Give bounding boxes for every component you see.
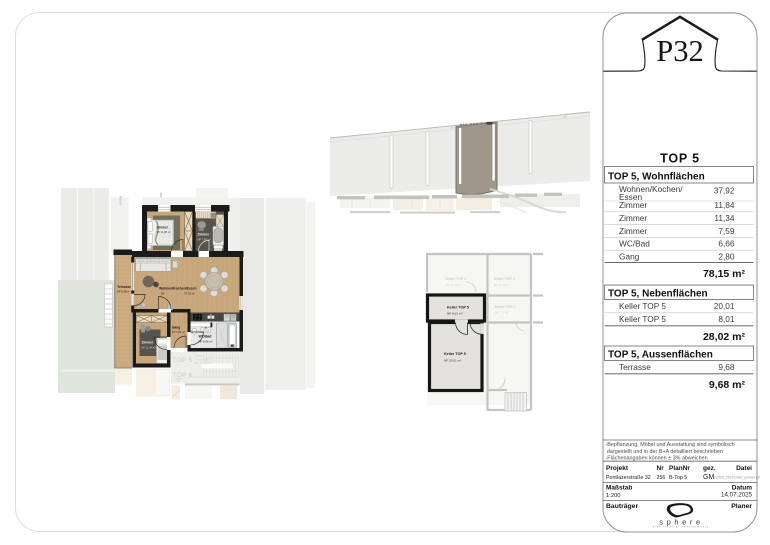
svg-text:9,68 m²: 9,68 m² <box>709 379 746 391</box>
svg-text:Keller TOP 5: Keller TOP 5 <box>619 314 666 324</box>
svg-text:NF 11,05m²: NF 11,05m² <box>446 283 462 287</box>
svg-text:Zimmer: Zimmer <box>157 226 169 230</box>
svg-text:Zimmer: Zimmer <box>619 200 647 210</box>
svg-text:Datum: Datum <box>732 485 752 492</box>
svg-text:WC/Bad: WC/Bad <box>619 239 650 249</box>
svg-text:Keller TOP 2: Keller TOP 2 <box>494 277 515 281</box>
svg-text:B-Top 5: B-Top 5 <box>669 475 687 481</box>
svg-text:Terrasse: Terrasse <box>117 285 131 289</box>
svg-text:7,59: 7,59 <box>718 226 735 236</box>
svg-text:NF 2,80 m²: NF 2,80 m² <box>172 330 185 334</box>
svg-text:NF 9,68m²: NF 9,68m² <box>117 289 129 293</box>
svg-text:Planer: Planer <box>731 503 752 510</box>
svg-text:dargestellt und in der B+A det: dargestellt und in der B+A detailliert b… <box>607 449 723 455</box>
svg-text:NF 7,59 m²: NF 7,59 m² <box>198 238 211 242</box>
svg-text:Keller TOP 5: Keller TOP 5 <box>447 306 469 310</box>
svg-text:NF 20,01 m²: NF 20,01 m² <box>444 359 461 363</box>
svg-text:28,02 m²: 28,02 m² <box>703 331 746 343</box>
svg-text:NF 8,01 m²: NF 8,01 m² <box>447 312 462 316</box>
svg-text:37,92: 37,92 <box>714 186 735 196</box>
svg-text:NF 6,66 m²: NF 6,66 m² <box>199 340 213 344</box>
svg-text:Gang: Gang <box>172 326 180 330</box>
svg-text:1:200: 1:200 <box>606 493 621 499</box>
svg-text:-Flächenangaben können ± 3% ab: -Flächenangaben können ± 3% abweichen <box>606 456 708 462</box>
svg-text:TOP 5, Aussenflächen: TOP 5, Aussenflächen <box>608 350 713 361</box>
svg-text:Keller TOP 1: Keller TOP 1 <box>495 305 516 309</box>
svg-text:NF 11,38 m²: NF 11,38 m² <box>157 230 171 234</box>
svg-text:220822_256 Pontlaz_pentauf.pln: 220822_256 Pontlaz_pentauf.pln <box>714 475 761 479</box>
svg-text:NF 10,82m²: NF 10,82m² <box>494 283 510 287</box>
svg-text:TOP 5: TOP 5 <box>173 357 193 364</box>
svg-text:PlanNr: PlanNr <box>669 465 690 472</box>
svg-text:architectural environments: architectural environments <box>653 526 710 529</box>
svg-text:Pontlazerstraße 32: Pontlazerstraße 32 <box>606 475 651 481</box>
svg-text:NF 7,1 m²: NF 7,1 m² <box>495 311 508 315</box>
svg-text:Zimmer: Zimmer <box>619 213 647 223</box>
svg-text:20,01: 20,01 <box>714 301 735 311</box>
svg-text:Keller TOP 5: Keller TOP 5 <box>619 301 666 311</box>
svg-text:6,66: 6,66 <box>718 239 735 249</box>
svg-text:37,92 m²: 37,92 m² <box>184 292 195 296</box>
svg-text:Keller TOP 3: Keller TOP 3 <box>446 277 467 281</box>
svg-text:Datei: Datei <box>736 465 752 472</box>
svg-text:256: 256 <box>657 475 666 481</box>
svg-text:Terrasse: Terrasse <box>619 362 651 372</box>
svg-text:78,15 m²: 78,15 m² <box>703 268 746 280</box>
svg-text:8,01: 8,01 <box>718 314 735 324</box>
svg-text:Keller TOP 5: Keller TOP 5 <box>444 352 466 356</box>
svg-text:WC/Bad: WC/Bad <box>199 335 212 339</box>
svg-text:Zimmer: Zimmer <box>142 341 154 345</box>
svg-text:TOP 5: TOP 5 <box>660 152 700 166</box>
svg-text:2,80: 2,80 <box>718 251 735 261</box>
svg-text:11,34: 11,34 <box>714 213 735 223</box>
svg-text:TOP 5, Nebenflächen: TOP 5, Nebenflächen <box>608 289 708 300</box>
svg-text:NF: NF <box>161 292 165 296</box>
svg-text:14.07.2025: 14.07.2025 <box>721 492 753 499</box>
svg-text:TOP 6: TOP 6 <box>173 372 193 379</box>
svg-text:TOP 5, Wohnflächen: TOP 5, Wohnflächen <box>608 172 705 183</box>
svg-text:11,84: 11,84 <box>714 200 735 210</box>
svg-text:Maßstab: Maßstab <box>606 485 632 492</box>
svg-text:Projekt: Projekt <box>606 465 629 472</box>
svg-text:Bauträger: Bauträger <box>606 503 638 510</box>
svg-text:Gang: Gang <box>619 251 640 261</box>
svg-text:Wohnen/Kochen/Essen: Wohnen/Kochen/Essen <box>159 287 197 291</box>
svg-text:Nr: Nr <box>657 465 665 472</box>
svg-text:gez.: gez. <box>703 465 716 472</box>
svg-text:Zimmer: Zimmer <box>619 226 647 236</box>
svg-text:9,68: 9,68 <box>718 362 735 372</box>
svg-text:-Bepflanzung, Möbel und Aussta: -Bepflanzung, Möbel und Ausstattung sind… <box>606 442 735 448</box>
svg-text:NF 11,34 m²: NF 11,34 m² <box>142 346 156 350</box>
svg-text:NF 11,48 m²: NF 11,48 m² <box>195 361 211 365</box>
svg-text:Zimmer: Zimmer <box>198 233 210 237</box>
svg-text:P32: P32 <box>656 34 703 68</box>
